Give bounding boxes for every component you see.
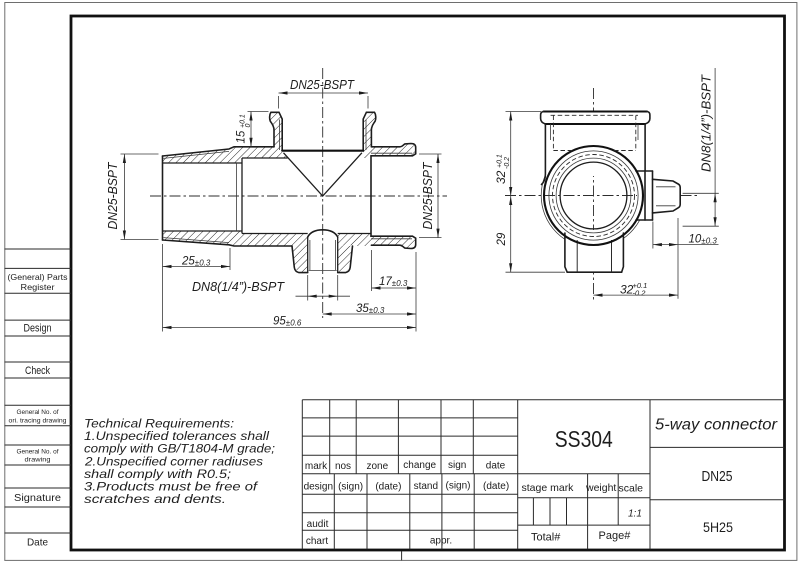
- svg-text:+0.1: +0.1: [497, 154, 504, 168]
- svg-text:29: 29: [496, 232, 508, 246]
- svg-text:sign: sign: [448, 460, 466, 471]
- svg-text:Register: Register: [21, 282, 55, 292]
- svg-text:weight: weight: [585, 482, 616, 494]
- svg-text:chart: chart: [306, 536, 328, 547]
- svg-text:(General) Parts: (General) Parts: [8, 272, 68, 282]
- svg-text:ori. tracing drawing: ori. tracing drawing: [9, 418, 67, 425]
- svg-text:audit: audit: [307, 519, 329, 530]
- svg-text:Check: Check: [25, 365, 50, 377]
- svg-text:shall comply with R0.5;: shall comply with R0.5;: [84, 469, 231, 481]
- svg-text:date: date: [486, 461, 506, 472]
- svg-text:(date): (date): [375, 482, 401, 493]
- svg-text:5H25: 5H25: [703, 519, 733, 535]
- svg-text:5-way connector: 5-way connector: [655, 417, 778, 434]
- svg-text:Page#: Page#: [599, 530, 632, 542]
- svg-text:comply with GB/T1804-M grade;: comply with GB/T1804-M grade;: [84, 444, 275, 456]
- svg-text:0: 0: [245, 124, 252, 128]
- svg-text:scratches and dents.: scratches and dents.: [84, 494, 226, 506]
- svg-text:DN25-BSPT: DN25-BSPT: [420, 162, 435, 230]
- svg-text:DN25: DN25: [702, 469, 733, 485]
- svg-text:General No. of: General No. of: [17, 449, 59, 456]
- svg-text:3.Products must be free of: 3.Products must be free of: [84, 482, 259, 494]
- svg-text:appr.: appr.: [430, 536, 452, 547]
- svg-text:zone: zone: [366, 461, 388, 472]
- svg-text:15: 15: [236, 130, 248, 143]
- svg-text:Design: Design: [24, 323, 52, 335]
- svg-text:(date): (date): [483, 481, 509, 492]
- svg-text:(sign): (sign): [338, 482, 363, 493]
- svg-text:Date: Date: [27, 537, 48, 549]
- svg-text:scale: scale: [619, 483, 644, 495]
- svg-text:(sign): (sign): [445, 481, 470, 492]
- svg-text:design: design: [304, 482, 333, 493]
- svg-text:change: change: [403, 460, 436, 471]
- svg-text:DN25-BSPT: DN25-BSPT: [105, 162, 120, 230]
- svg-text:-0.2: -0.2: [633, 289, 647, 298]
- svg-text:Technical Requirements:: Technical Requirements:: [84, 419, 234, 431]
- svg-text:mark: mark: [305, 461, 328, 472]
- svg-text:DN25-BSPT: DN25-BSPT: [290, 77, 355, 92]
- svg-text:1.Unspecified tolerances shall: 1.Unspecified tolerances shall: [84, 431, 270, 443]
- svg-text:DN8(1/4”)-BSPT: DN8(1/4”)-BSPT: [700, 74, 714, 172]
- svg-text:stand: stand: [414, 481, 438, 492]
- svg-text:32: 32: [494, 170, 508, 184]
- svg-text:DN8(1/4”)-BSPT: DN8(1/4”)-BSPT: [192, 280, 285, 294]
- svg-text:1:1: 1:1: [628, 509, 642, 520]
- svg-text:General No. of: General No. of: [17, 409, 59, 416]
- svg-text:Signature: Signature: [14, 492, 61, 504]
- svg-text:nos: nos: [335, 461, 351, 472]
- svg-text:stage mark: stage mark: [522, 482, 575, 494]
- svg-text:Total#: Total#: [531, 532, 561, 544]
- svg-text:SS304: SS304: [555, 426, 613, 452]
- svg-text:-0.2: -0.2: [504, 157, 511, 169]
- svg-text:2.Unspecified corner radiuses: 2.Unspecified corner radiuses: [84, 456, 263, 468]
- svg-text:drawing: drawing: [25, 457, 51, 464]
